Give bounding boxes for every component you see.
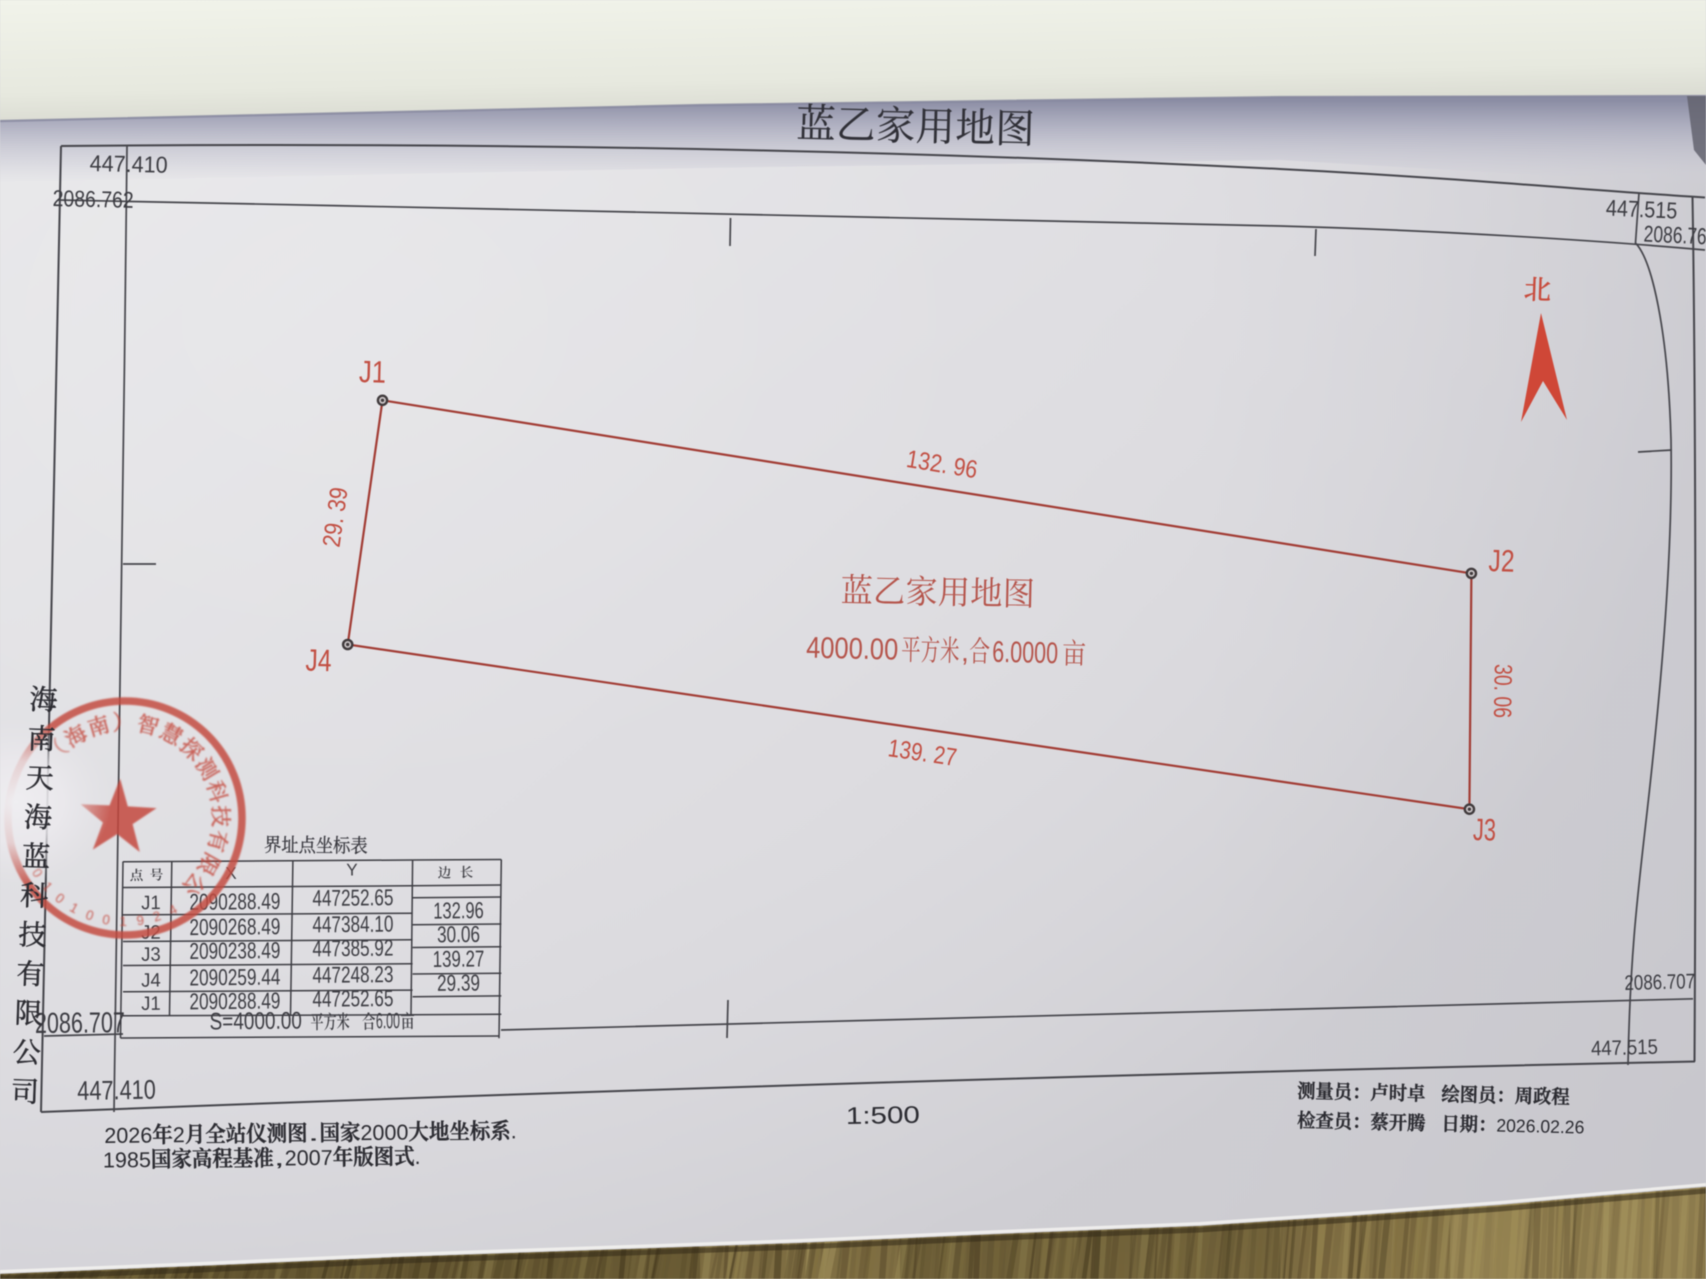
- svg-text:2086.707: 2086.707: [1624, 970, 1695, 995]
- svg-text:447.515: 447.515: [1605, 195, 1678, 224]
- svg-text:2026: 2026: [104, 1123, 152, 1148]
- svg-text:139.27: 139.27: [433, 945, 485, 972]
- svg-text:J3: J3: [1473, 812, 1497, 848]
- svg-text:2: 2: [173, 1123, 185, 1147]
- svg-text:J4: J4: [305, 643, 332, 679]
- svg-text:447.515: 447.515: [1591, 1036, 1658, 1061]
- svg-text:Y: Y: [346, 860, 358, 879]
- svg-text:.: .: [414, 1145, 420, 1169]
- svg-text:6.00: 6.00: [376, 1008, 400, 1033]
- svg-text:447.410: 447.410: [89, 150, 168, 178]
- svg-text:447385.92: 447385.92: [312, 935, 393, 962]
- svg-text:J2: J2: [1488, 543, 1515, 579]
- svg-text:J4: J4: [141, 969, 161, 991]
- svg-text:447248.23: 447248.23: [312, 961, 393, 988]
- svg-text:447384.10: 447384.10: [312, 911, 393, 938]
- svg-text:447252.65: 447252.65: [312, 884, 393, 911]
- svg-text:.: .: [511, 1119, 517, 1143]
- svg-text:J1: J1: [141, 993, 161, 1015]
- svg-text:J3: J3: [141, 944, 161, 966]
- svg-text:4000.00: 4000.00: [806, 632, 899, 667]
- svg-text:2090268.49: 2090268.49: [189, 913, 280, 940]
- svg-text:2086.762: 2086.762: [52, 185, 134, 213]
- svg-text:,: ,: [961, 636, 969, 667]
- svg-text:2090259.44: 2090259.44: [189, 964, 280, 991]
- svg-text:S=4000.00: S=4000.00: [209, 1008, 302, 1036]
- svg-text:2086.76: 2086.76: [1643, 221, 1706, 250]
- svg-text:.: .: [307, 1122, 319, 1146]
- svg-text:2086.707: 2086.707: [35, 1007, 125, 1040]
- svg-text:2090238.49: 2090238.49: [189, 937, 280, 964]
- svg-text:1985: 1985: [103, 1148, 151, 1173]
- svg-text:1: 1: [119, 914, 127, 929]
- svg-text:132.96: 132.96: [433, 897, 484, 924]
- svg-text:J1: J1: [359, 354, 387, 390]
- svg-text:2007: 2007: [285, 1146, 333, 1171]
- svg-text:2026.02.26: 2026.02.26: [1496, 1116, 1584, 1138]
- svg-text:30. 06: 30. 06: [1488, 664, 1517, 718]
- svg-text:447.410: 447.410: [77, 1075, 156, 1106]
- svg-text:6.0000: 6.0000: [992, 636, 1059, 670]
- svg-text:1:500: 1:500: [846, 1102, 920, 1130]
- svg-text:29.39: 29.39: [437, 969, 480, 995]
- svg-text:2000: 2000: [360, 1121, 408, 1146]
- svg-text:30.06: 30.06: [437, 921, 480, 947]
- svg-text:,: ,: [274, 1146, 285, 1170]
